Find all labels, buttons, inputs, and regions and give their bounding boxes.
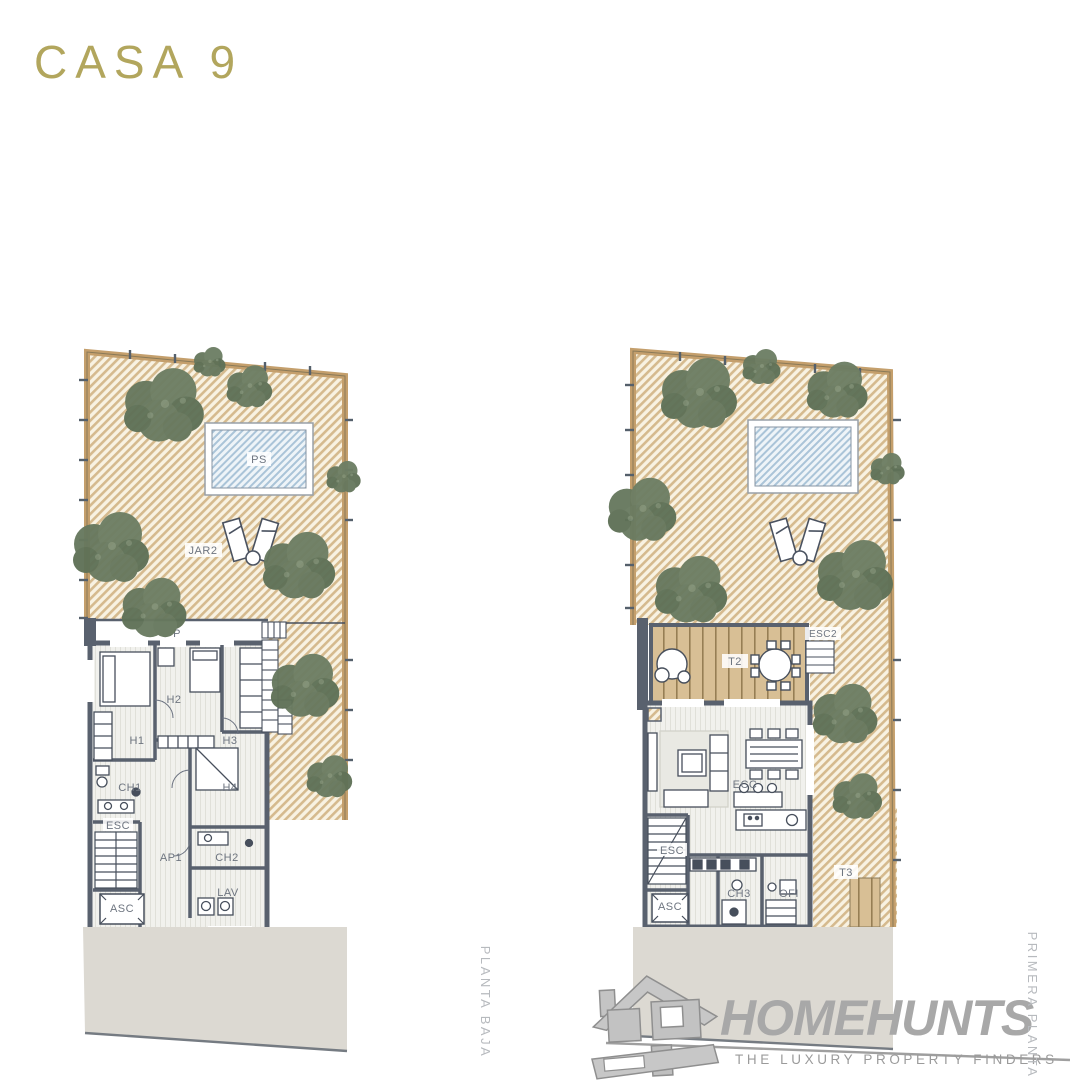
room-label-esc2: ESC2 <box>809 629 837 640</box>
logo-tagline: THE LUXURY PROPERTY FINDERS <box>735 1052 1058 1067</box>
left-platform <box>83 927 347 1051</box>
room-label-ch2: CH2 <box>215 852 239 864</box>
room-label-asc: ASC <box>110 903 134 915</box>
room-label-t3: T3 <box>839 867 853 879</box>
right-building: ECC ESC ASC CH3 OFI <box>645 699 814 927</box>
right-plan: T2 ESC2 <box>608 349 905 1049</box>
room-label-ecc: ECC <box>733 779 758 791</box>
room-label-h2: H2 <box>166 694 181 706</box>
plan-drawing: CASA 9 <box>0 0 1070 1080</box>
room-label-esc: ESC <box>660 845 684 857</box>
room-label-ch3: CH3 <box>727 888 751 900</box>
room-label-ofi: OFI <box>779 888 799 900</box>
room-label-h3: H3 <box>222 735 237 747</box>
room-label-t2: T2 <box>728 656 742 668</box>
room-label-esc: ESC <box>106 820 130 832</box>
left-pool: PS <box>205 423 313 495</box>
left-stairs <box>95 832 137 888</box>
logo-brand-text: HOMEHUNTS <box>720 990 1034 1046</box>
room-label-ch1: CH1 <box>118 782 142 794</box>
room-label-ap1: AP1 <box>160 852 182 864</box>
right-pool <box>748 420 858 493</box>
floor-plan-sheet: CASA 9 <box>0 0 1070 1080</box>
room-label-lav: LAV <box>217 887 239 899</box>
room-label-h4: H4 <box>222 782 237 794</box>
floor-name-planta-baja: PLANTA BAJA <box>478 946 493 1059</box>
garden-label: JAR2 <box>189 545 218 557</box>
page-title: CASA 9 <box>34 36 243 88</box>
left-building: P <box>84 618 268 934</box>
floor-name-primera-planta: PRIMERA PLANTA <box>1025 932 1040 1079</box>
left-plan: PS JAR2 P <box>73 347 361 1051</box>
pool-label: PS <box>251 454 267 466</box>
room-label-h1: H1 <box>129 735 144 747</box>
room-label-asc: ASC <box>658 901 682 913</box>
